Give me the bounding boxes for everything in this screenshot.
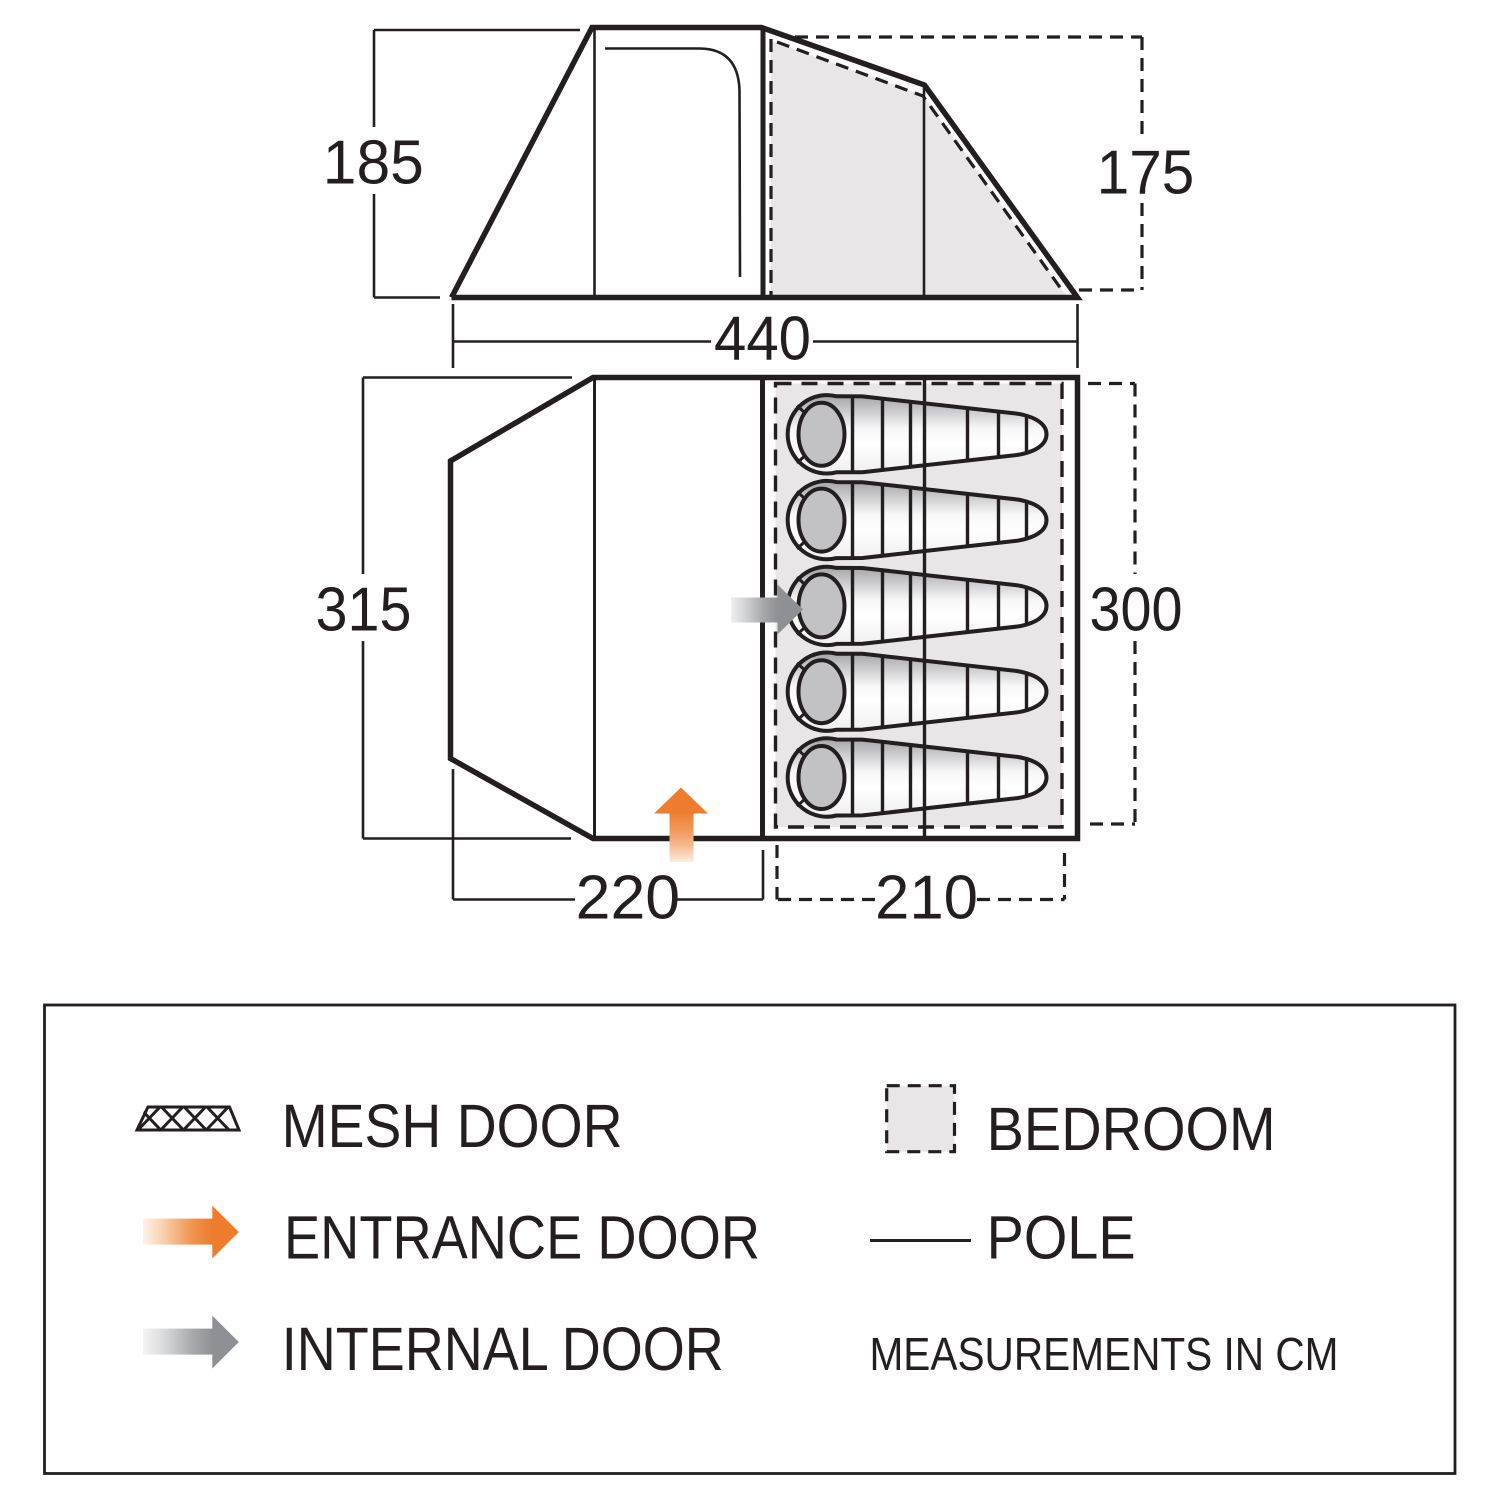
svg-text:315: 315 <box>316 575 412 645</box>
svg-text:185: 185 <box>323 128 424 198</box>
svg-text:210: 210 <box>875 863 978 933</box>
svg-text:MEASUREMENTS IN CM: MEASUREMENTS IN CM <box>870 1328 1339 1380</box>
svg-text:440: 440 <box>714 304 811 374</box>
svg-text:ENTRANCE DOOR: ENTRANCE DOOR <box>284 1204 760 1272</box>
svg-text:POLE: POLE <box>987 1204 1136 1272</box>
svg-text:175: 175 <box>1097 138 1195 208</box>
svg-text:220: 220 <box>576 863 681 933</box>
svg-text:INTERNAL DOOR: INTERNAL DOOR <box>282 1315 724 1383</box>
svg-text:BEDROOM: BEDROOM <box>987 1095 1276 1163</box>
svg-text:MESH DOOR: MESH DOOR <box>282 1092 623 1160</box>
svg-text:300: 300 <box>1090 575 1183 645</box>
